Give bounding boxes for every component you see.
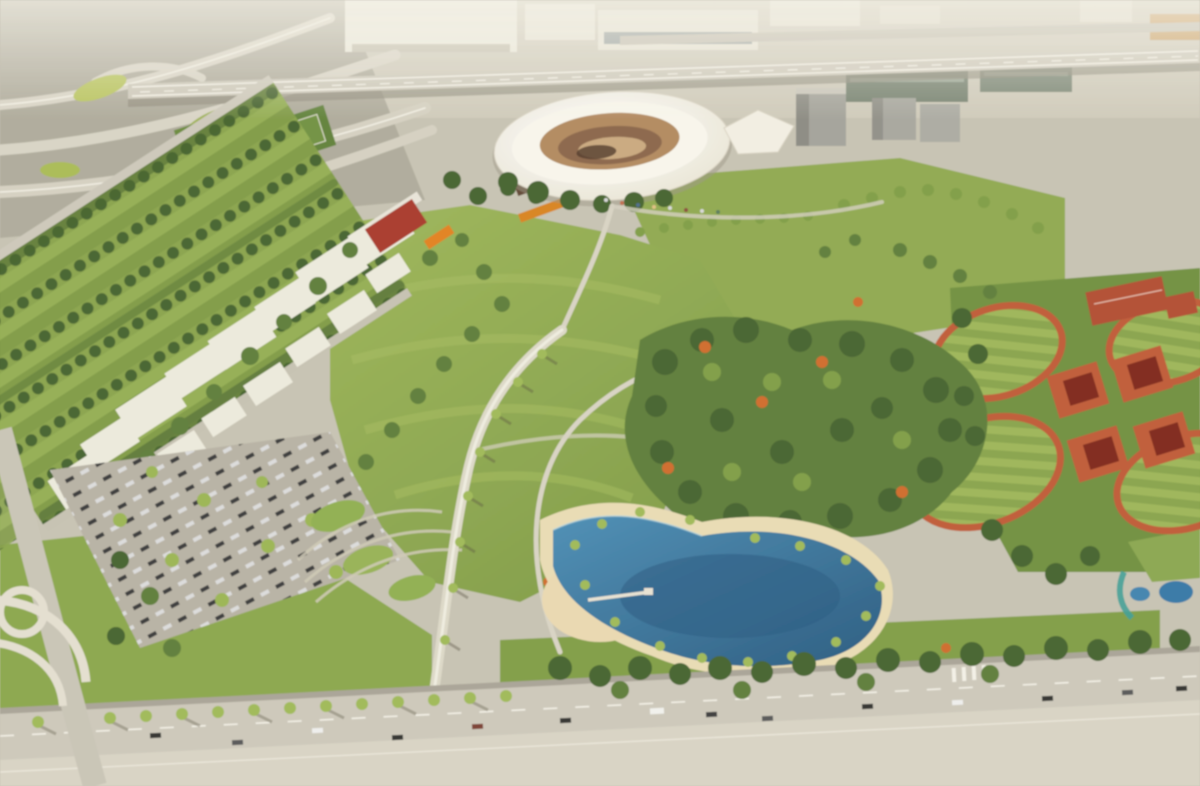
scene-canvas [0, 0, 1200, 786]
warm-tint [0, 0, 1200, 786]
scene-root [0, 0, 1200, 786]
aerial-rendering: Aerial rendering of a planned stadium pa… [0, 0, 1200, 786]
